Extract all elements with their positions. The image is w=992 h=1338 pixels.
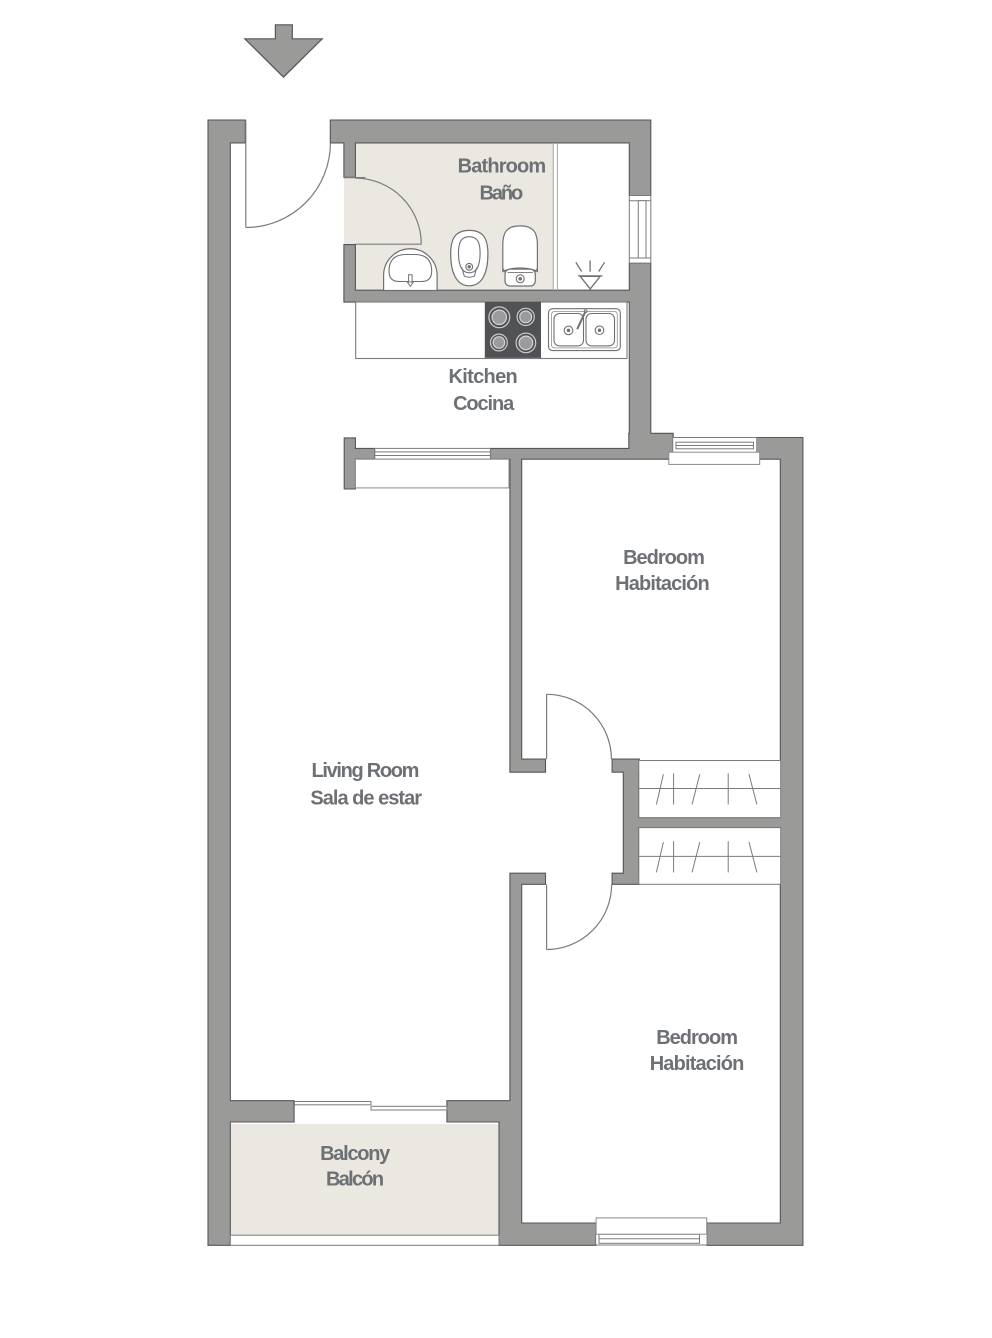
- svg-text:Kitchen: Kitchen: [449, 366, 518, 388]
- svg-text:Bedroom: Bedroom: [623, 547, 704, 569]
- svg-text:Sala de estar: Sala de estar: [310, 788, 422, 810]
- svg-text:Living Room: Living Room: [311, 760, 418, 782]
- svg-text:Balcony: Balcony: [320, 1143, 391, 1165]
- svg-text:Cocina: Cocina: [453, 393, 515, 415]
- svg-text:Balcón: Balcón: [326, 1169, 383, 1191]
- svg-text:Baño: Baño: [479, 182, 523, 204]
- svg-text:Bathroom: Bathroom: [458, 156, 546, 178]
- svg-text:Habitación: Habitación: [615, 573, 709, 595]
- svg-text:Bedroom: Bedroom: [656, 1027, 737, 1049]
- svg-text:Habitación: Habitación: [650, 1053, 744, 1075]
